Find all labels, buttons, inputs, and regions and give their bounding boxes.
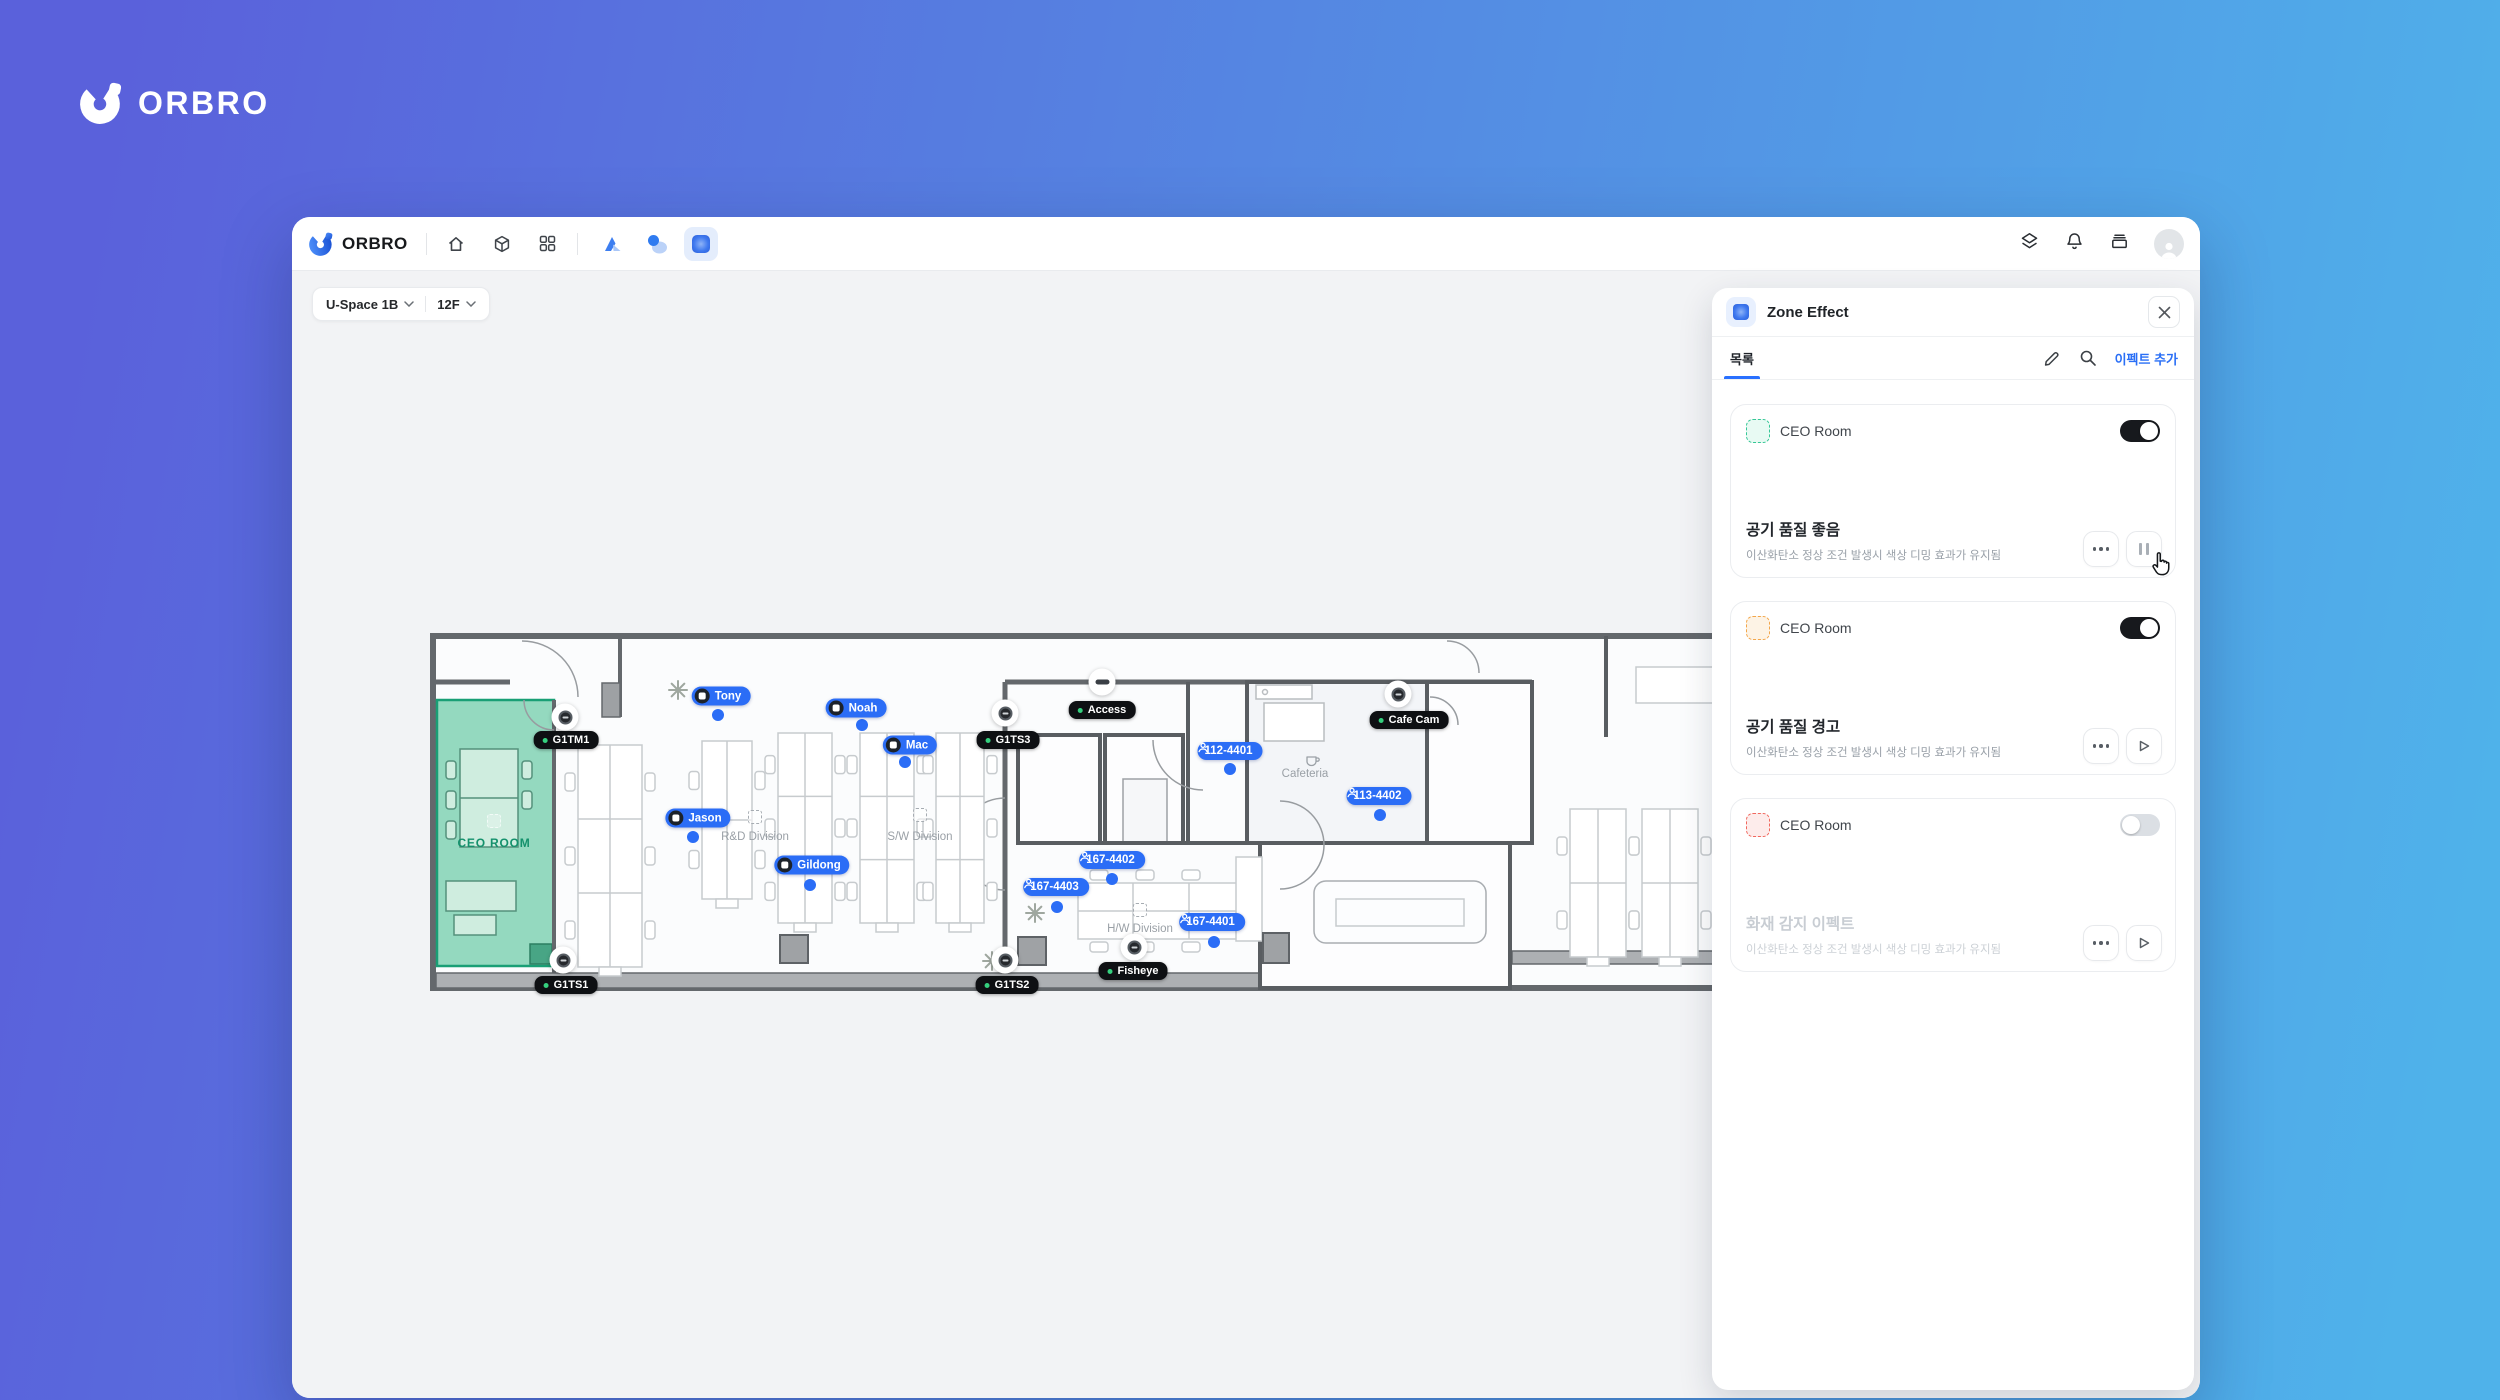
status-dot: [544, 983, 549, 988]
effect-title: 공기 품질 좋음: [1746, 518, 2067, 540]
effect-toggle[interactable]: [2120, 420, 2160, 442]
device-label[interactable]: G1TS1: [535, 976, 598, 994]
more-button[interactable]: [2083, 531, 2119, 567]
person-tag[interactable]: Tony: [692, 687, 751, 706]
zone-dashed-icon: [1133, 903, 1147, 917]
close-icon: [2158, 306, 2171, 319]
sensor-tag[interactable]: 112-4401: [1198, 742, 1263, 760]
person-name: Tony: [715, 690, 742, 702]
zone-effect-panel: Zone Effect 목록: [1712, 288, 2194, 1390]
area-label: CEO ROOM: [457, 836, 530, 850]
area-label: R&D Division: [721, 831, 789, 843]
notifications-bell-icon[interactable]: [2064, 231, 2085, 257]
sensor-id: 112-4401: [1205, 745, 1253, 757]
person-name: Noah: [849, 702, 878, 714]
add-effect-button[interactable]: 이펙트 추가: [2115, 349, 2178, 368]
effect-toggle[interactable]: [2120, 617, 2160, 639]
site-selector-value: U-Space 1B: [326, 297, 398, 312]
effect-title: 공기 품질 경고: [1746, 715, 2067, 737]
app-icon-people[interactable]: [640, 227, 674, 261]
titlebar-brand-text: ORBRO: [342, 234, 408, 254]
person-icon: [1198, 742, 1209, 753]
ellipsis-icon: [2093, 744, 2110, 748]
zone-dashed-icon: [748, 810, 762, 824]
person-icon: [1023, 878, 1034, 889]
floor-selector[interactable]: 12F: [437, 297, 475, 312]
orbro-logo-icon: [78, 80, 124, 126]
titlebar: ORBRO: [292, 217, 2200, 271]
orbro-logo-icon-small: [308, 231, 334, 257]
app-icon-analytics[interactable]: [596, 227, 630, 261]
sensor-position-dot: [1106, 873, 1118, 885]
person-position-dot: [804, 879, 816, 891]
location-selectors: U-Space 1B 12F: [312, 287, 490, 321]
status-dot: [1078, 708, 1083, 713]
play-button[interactable]: [2126, 728, 2162, 764]
effect-toggle[interactable]: [2120, 814, 2160, 836]
device-label[interactable]: Cafe Cam: [1370, 711, 1449, 729]
mouse-cursor-hand: [2148, 551, 2174, 579]
close-button[interactable]: [2148, 296, 2180, 328]
more-button[interactable]: [2083, 728, 2119, 764]
person-position-dot: [712, 709, 724, 721]
person-icon: [1179, 913, 1190, 924]
device-name: Access: [1088, 704, 1127, 716]
sensor-tag[interactable]: 113-4402: [1347, 787, 1412, 805]
device-label[interactable]: Access: [1069, 701, 1136, 719]
app-window: ORBRO: [292, 217, 2200, 1398]
person-tag[interactable]: Jason: [665, 809, 730, 828]
effect-description: 이산화탄소 정상 조건 발생시 색상 디밍 효과가 유지됨: [1746, 547, 2067, 563]
effect-title: 화재 감지 이펙트: [1746, 912, 2067, 934]
divider: [425, 296, 426, 312]
play-button[interactable]: [2126, 925, 2162, 961]
person-name: Gildong: [797, 859, 840, 871]
person-avatar-icon: [668, 811, 683, 826]
person-tag[interactable]: Noah: [826, 699, 887, 718]
play-icon: [2137, 739, 2151, 753]
access-point-marker[interactable]: [1089, 669, 1116, 696]
sensor-position-dot: [1224, 763, 1236, 775]
person-name: Mac: [906, 739, 928, 751]
layers-icon[interactable]: [2019, 231, 2040, 257]
person-avatar-icon: [829, 701, 844, 716]
sensor-tag[interactable]: 167-4402: [1079, 851, 1145, 869]
camera-marker[interactable]: [1385, 681, 1412, 708]
effect-card-list: CEO Room공기 품질 좋음이산화탄소 정상 조건 발생시 색상 디밍 효과…: [1712, 380, 2194, 995]
person-avatar-icon: [777, 858, 792, 873]
person-avatar-icon: [886, 738, 901, 753]
person-name: Jason: [688, 812, 721, 824]
effect-description: 이산화탄소 정상 조건 발생시 색상 디밍 효과가 유지됨: [1746, 941, 2067, 957]
device-name: Fisheye: [1118, 965, 1159, 977]
person-tag[interactable]: Mac: [883, 736, 937, 755]
sensor-id: 113-4402: [1354, 790, 1402, 802]
sensor-tag[interactable]: 167-4401: [1179, 913, 1245, 931]
orbro-hero-text: ORBRO: [138, 85, 270, 122]
chevron-down-icon: [466, 301, 476, 307]
more-button[interactable]: [2083, 925, 2119, 961]
status-dot: [985, 983, 990, 988]
effect-card[interactable]: CEO Room화재 감지 이펙트이산화탄소 정상 조건 발생시 색상 디밍 효…: [1730, 798, 2176, 972]
status-dot: [543, 738, 548, 743]
site-selector[interactable]: U-Space 1B: [326, 297, 414, 312]
device-label[interactable]: G1TM1: [534, 731, 599, 749]
apps-grid-icon[interactable]: [537, 233, 559, 255]
camera-marker[interactable]: [552, 704, 579, 731]
map-content: U-Space 1B 12F: [292, 271, 2200, 1398]
sensor-position-dot: [1374, 809, 1386, 821]
search-icon[interactable]: [2079, 349, 2098, 368]
user-avatar[interactable]: [2154, 229, 2184, 259]
home-icon[interactable]: [445, 233, 467, 255]
zone-name: CEO Room: [1780, 620, 1852, 636]
camera-marker[interactable]: [550, 947, 577, 974]
zone-name: CEO Room: [1780, 817, 1852, 833]
person-icon: [1079, 851, 1090, 862]
zone-icon: [1746, 813, 1770, 837]
sensor-position-dot: [1208, 936, 1220, 948]
app-switcher: [596, 227, 718, 261]
camera-marker[interactable]: [992, 947, 1019, 974]
camera-marker[interactable]: [992, 700, 1019, 727]
effect-card[interactable]: CEO Room공기 품질 좋음이산화탄소 정상 조건 발생시 색상 디밍 효과…: [1730, 404, 2176, 578]
person-tag[interactable]: Gildong: [774, 856, 849, 875]
divider: [577, 233, 578, 255]
area-label: H/W Division: [1107, 923, 1173, 935]
zone-dashed-icon: [913, 808, 927, 822]
ellipsis-icon: [2093, 941, 2110, 945]
ellipsis-icon: [2093, 547, 2110, 551]
sensor-tag[interactable]: 167-4403: [1023, 878, 1089, 896]
person-position-dot: [856, 719, 868, 731]
panel-title: Zone Effect: [1767, 304, 1849, 321]
device-label[interactable]: G1TS3: [977, 731, 1040, 749]
area-label: Cafeteria: [1282, 768, 1329, 780]
effect-card[interactable]: CEO Room공기 품질 경고이산화탄소 정상 조건 발생시 색상 디밍 효과…: [1730, 601, 2176, 775]
zone-name: CEO Room: [1780, 423, 1852, 439]
status-dot: [986, 738, 991, 743]
device-name: G1TS2: [995, 979, 1030, 991]
sensor-id: 167-4402: [1086, 854, 1135, 866]
sensor-id: 167-4401: [1186, 916, 1235, 928]
device-label[interactable]: G1TS2: [976, 976, 1039, 994]
divider: [426, 233, 427, 255]
chevron-down-icon: [404, 301, 414, 307]
panel-tabs: 목록 이펙트 추가: [1712, 337, 2194, 380]
floor-selector-value: 12F: [437, 297, 459, 312]
zone-icon: [1746, 616, 1770, 640]
edit-pencil-icon[interactable]: [2043, 349, 2062, 368]
person-position-dot: [687, 831, 699, 843]
device-label[interactable]: Fisheye: [1099, 962, 1168, 980]
device-name: G1TM1: [553, 734, 590, 746]
app-icon-zone-effect[interactable]: [684, 227, 718, 261]
tab-list[interactable]: 목록: [1728, 337, 1756, 379]
effect-description: 이산화탄소 정상 조건 발생시 색상 디밍 효과가 유지됨: [1746, 744, 2067, 760]
zone-icon: [1746, 419, 1770, 443]
zone-effect-app-icon: [1726, 297, 1756, 327]
device-name: Cafe Cam: [1389, 714, 1440, 726]
sensor-position-dot: [1051, 901, 1063, 913]
zone-dashed-icon: [487, 814, 501, 828]
device-name: G1TS1: [554, 979, 589, 991]
orbro-hero-brand: ORBRO: [78, 80, 270, 126]
titlebar-brand[interactable]: ORBRO: [308, 231, 408, 257]
camera-marker[interactable]: [1121, 934, 1148, 961]
status-dot: [1379, 718, 1384, 723]
person-icon: [1347, 787, 1358, 798]
status-dot: [1108, 969, 1113, 974]
device-name: G1TS3: [996, 734, 1031, 746]
archive-icon[interactable]: [2109, 231, 2130, 257]
sensor-id: 167-4403: [1030, 881, 1079, 893]
play-icon: [2137, 936, 2151, 950]
person-avatar-icon: [695, 689, 710, 704]
panel-header: Zone Effect: [1712, 288, 2194, 337]
cube-icon[interactable]: [491, 233, 513, 255]
area-label: S/W Division: [887, 831, 952, 843]
person-position-dot: [899, 756, 911, 768]
